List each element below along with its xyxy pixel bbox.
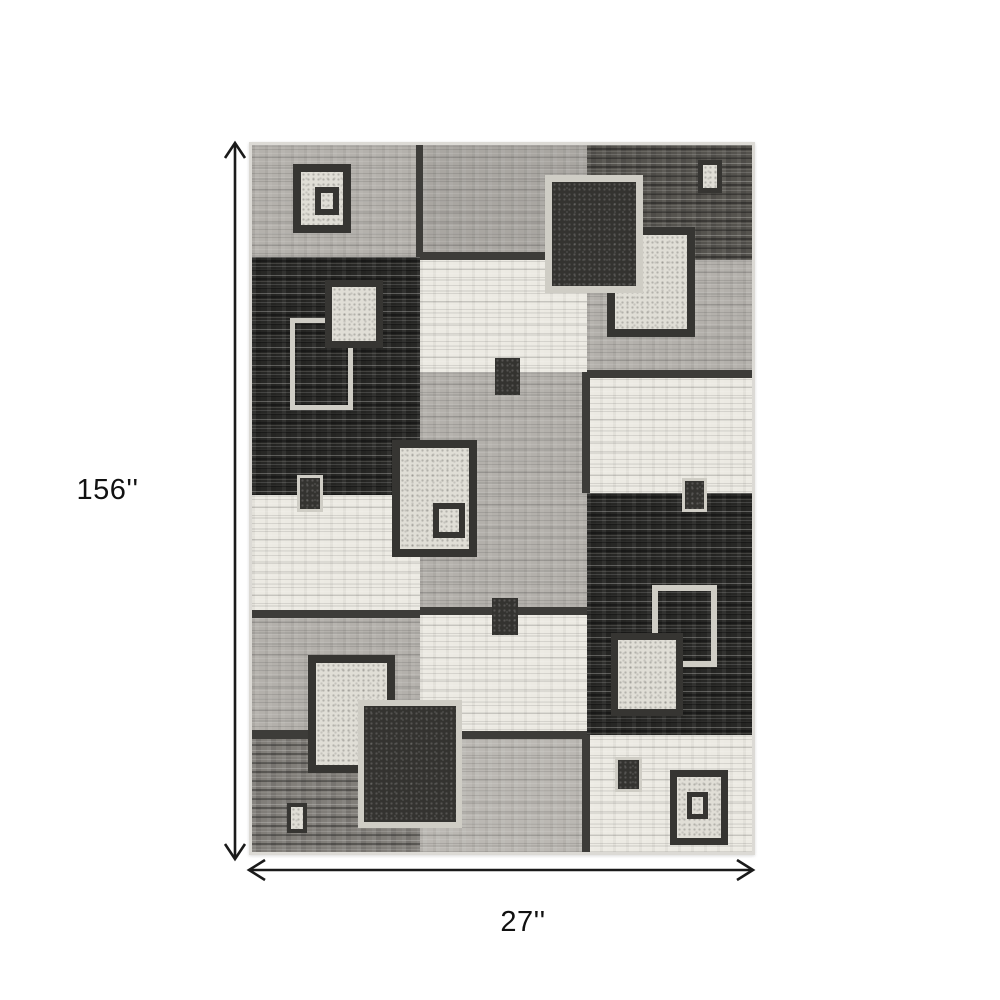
width-dimension-label: 27'' bbox=[462, 908, 584, 937]
motif-double-square-center-outer bbox=[392, 440, 477, 557]
rug-seam bbox=[582, 735, 590, 852]
motif-solid-square-center-bottom bbox=[492, 598, 518, 635]
rug-canvas bbox=[252, 145, 752, 852]
rug-image bbox=[249, 142, 755, 855]
motif-solid-square-center-top bbox=[495, 358, 520, 395]
rug-block-col3-row3 bbox=[587, 375, 752, 493]
rug-seam bbox=[252, 610, 420, 618]
motif-small-square-bottom-left bbox=[287, 803, 307, 833]
height-dimension-label: 156'' bbox=[50, 476, 165, 505]
motif-dark-square-top-right bbox=[545, 175, 643, 293]
motif-light-square-right bbox=[611, 633, 683, 716]
width-dimension-arrow bbox=[240, 854, 762, 886]
rug-seam bbox=[582, 372, 590, 493]
height-dimension-arrow bbox=[219, 134, 251, 868]
rug-seam bbox=[416, 145, 423, 257]
rug-seam bbox=[587, 370, 752, 378]
motif-double-square-center-inner bbox=[433, 503, 465, 538]
motif-small-square-left-mid bbox=[297, 475, 323, 512]
motif-light-square-left bbox=[325, 280, 383, 348]
motif-small-square-right-mid bbox=[682, 478, 707, 512]
motif-small-square-top-right bbox=[698, 160, 722, 193]
motif-double-square-top-left-inner bbox=[315, 187, 339, 215]
motif-dark-square-bottom-left bbox=[358, 700, 462, 828]
motif-double-square-bottom-right-inner bbox=[687, 792, 708, 819]
motif-small-square-bottom-right bbox=[615, 757, 642, 792]
